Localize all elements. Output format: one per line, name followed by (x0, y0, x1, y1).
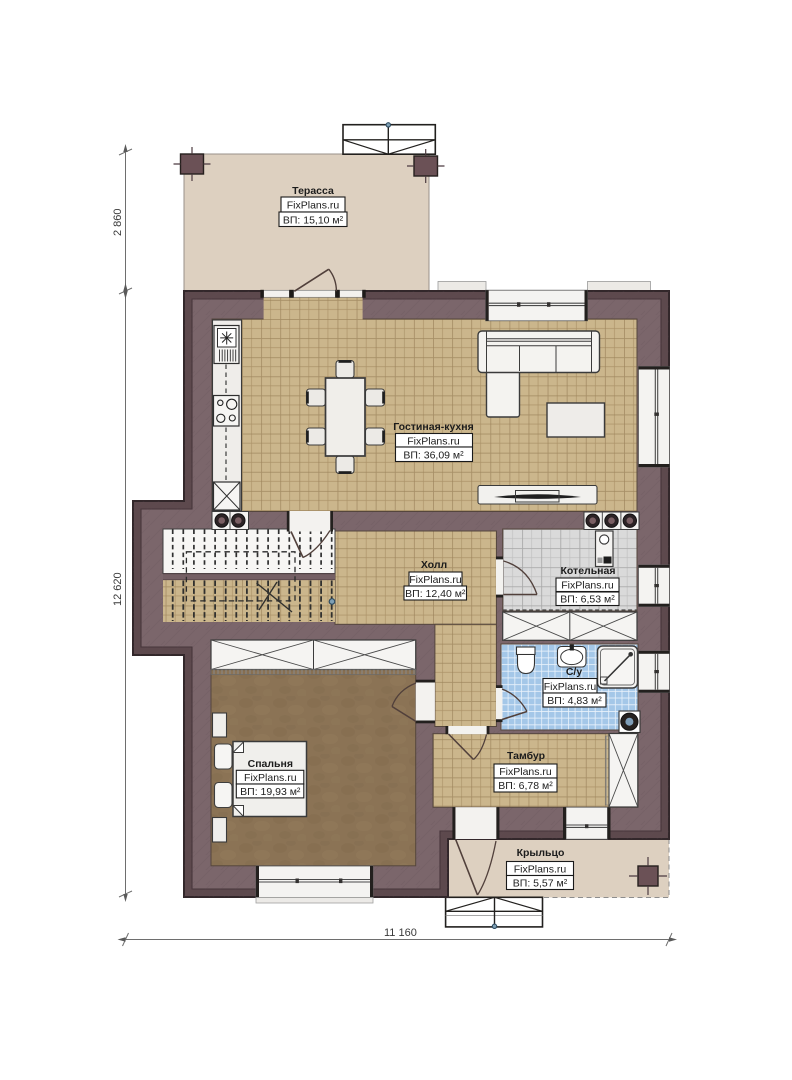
svg-text:ВП: 6,78 м²: ВП: 6,78 м² (498, 780, 553, 792)
svg-text:ВП: 6,53 м²: ВП: 6,53 м² (560, 594, 615, 606)
svg-text:Гостиная-кухня: Гостиная-кухня (393, 421, 473, 433)
svg-text:Терасса: Терасса (292, 185, 334, 197)
svg-text:FixPlans.ru: FixPlans.ru (287, 200, 340, 212)
svg-text:FixPlans.ru: FixPlans.ru (544, 681, 597, 693)
svg-text:FixPlans.ru: FixPlans.ru (407, 435, 460, 447)
svg-text:ВП: 36,09 м²: ВП: 36,09 м² (403, 450, 464, 462)
svg-text:FixPlans.ru: FixPlans.ru (409, 574, 462, 586)
svg-text:Крыльцо: Крыльцо (517, 847, 565, 859)
svg-text:ВП: 19,93 м²: ВП: 19,93 м² (240, 786, 301, 798)
svg-text:Спальня: Спальня (248, 758, 293, 770)
svg-text:FixPlans.ru: FixPlans.ru (244, 772, 297, 784)
svg-text:FixPlans.ru: FixPlans.ru (561, 580, 614, 592)
svg-text:Котельная: Котельная (561, 565, 616, 577)
svg-text:Тамбур: Тамбур (507, 750, 545, 762)
svg-text:ВП: 12,40 м²: ВП: 12,40 м² (405, 588, 466, 600)
svg-text:ВП: 4,83 м²: ВП: 4,83 м² (547, 695, 602, 707)
svg-text:FixPlans.ru: FixPlans.ru (499, 766, 552, 778)
svg-text:12 620: 12 620 (112, 572, 124, 606)
svg-text:Холл: Холл (421, 559, 447, 571)
svg-text:С/у: С/у (566, 666, 583, 678)
svg-text:2 860: 2 860 (112, 208, 124, 236)
svg-text:ВП: 5,57 м²: ВП: 5,57 м² (513, 877, 568, 889)
svg-text:11 160: 11 160 (384, 927, 417, 939)
svg-text:ВП: 15,10 м²: ВП: 15,10 м² (283, 215, 344, 227)
svg-text:FixPlans.ru: FixPlans.ru (514, 863, 567, 875)
